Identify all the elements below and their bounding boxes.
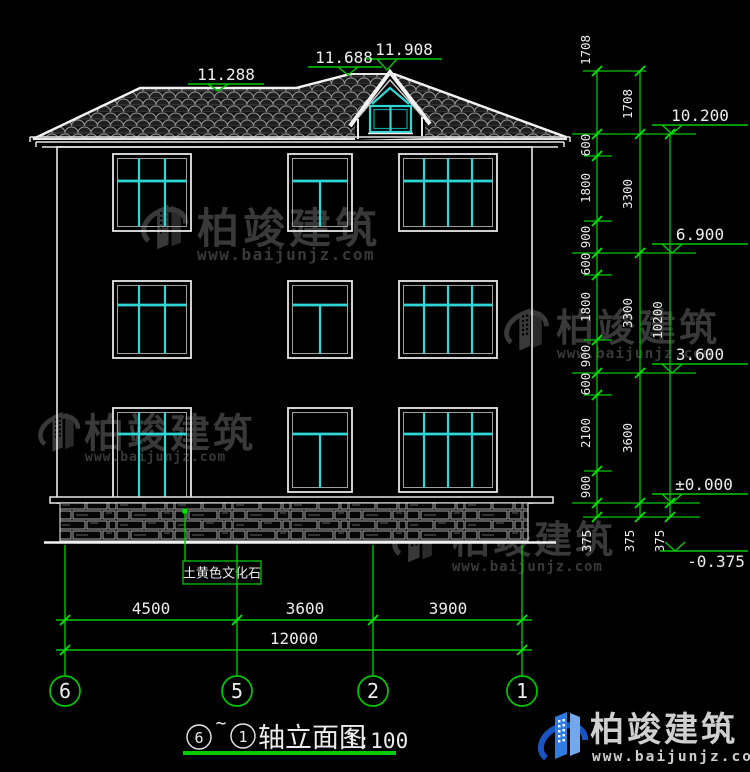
dim-text: 3600 xyxy=(286,599,325,618)
dim-text: 3300 xyxy=(620,298,635,328)
brand-name: 柏竣建筑 xyxy=(590,710,738,750)
material-label: 土黄色文化石 xyxy=(183,566,261,582)
stone-base xyxy=(60,503,528,541)
axis-bubbles: 6 5 2 1 xyxy=(50,676,537,706)
roof xyxy=(33,74,566,139)
watermark-logo-icon xyxy=(40,412,77,452)
dim-text: 3300 xyxy=(620,179,635,209)
dim-text: 1708 xyxy=(620,89,635,119)
elevation-label: 6.900 xyxy=(676,225,724,244)
elevation-label: 11.688 xyxy=(315,48,373,67)
axis-bubble-label: 2 xyxy=(367,679,379,703)
drawing-title: 6 ~ 1 轴立面图 1:100 xyxy=(183,713,408,755)
dim-text: 900 xyxy=(578,476,593,499)
house-elevation xyxy=(30,72,570,543)
dim-text: 1800 xyxy=(578,173,593,203)
dim-text: 600 xyxy=(578,253,593,276)
watermark-url: www.baijunjz.com xyxy=(197,245,375,264)
dim-text: 900 xyxy=(578,226,593,249)
dim-text: 1708 xyxy=(578,35,593,65)
brand-footer: 柏竣建筑 www.baijunjz.com xyxy=(541,710,750,765)
elevation-label: -0.375 xyxy=(687,552,745,571)
dim-text: 375 xyxy=(622,530,637,553)
title-axis-to: 1 xyxy=(238,728,247,746)
axis-bubble-label: 6 xyxy=(59,679,71,703)
window-ground-middle xyxy=(288,408,352,492)
cad-elevation-drawing: 柏竣建筑 www.baijunjz.com 柏竣建筑 www.baijunjz.… xyxy=(0,0,750,772)
dim-text: 1800 xyxy=(578,292,593,322)
dim-text: 10200 xyxy=(650,301,665,339)
title-underline xyxy=(183,751,396,755)
window-top-right xyxy=(399,154,497,231)
watermark-url: www.baijunjz.com xyxy=(452,559,603,575)
dim-text: 900 xyxy=(578,345,593,368)
watermark-upper-center: 柏竣建筑 www.baijunjz.com xyxy=(144,204,381,264)
dim-text: 375 xyxy=(652,530,667,553)
dim-text: 600 xyxy=(578,373,593,396)
window-ground-right xyxy=(399,408,497,492)
watermark-lower-left: 柏竣建筑 www.baijunjz.com xyxy=(40,411,256,465)
window-mid-left xyxy=(113,281,191,358)
dim-text: 2100 xyxy=(578,418,593,448)
brand-url: www.baijunjz.com xyxy=(592,749,750,765)
drawing-canvas: 柏竣建筑 www.baijunjz.com 柏竣建筑 www.baijunjz.… xyxy=(0,0,750,772)
title-scale: 1:100 xyxy=(345,729,408,753)
brand-logo-icon xyxy=(541,712,585,759)
title-separator: ~ xyxy=(216,713,227,734)
dim-text: 600 xyxy=(578,134,593,157)
elevation-label: 10.200 xyxy=(671,106,729,125)
dim-text: 4500 xyxy=(132,599,171,618)
dim-text: 3900 xyxy=(429,599,468,618)
floor-slab-band xyxy=(50,497,553,503)
dim-text: 12000 xyxy=(270,629,318,648)
dim-text: 375 xyxy=(579,530,594,553)
window-mid-middle xyxy=(288,281,352,358)
elevation-label: 11.908 xyxy=(375,40,433,59)
axis-bubble-label: 5 xyxy=(231,679,243,703)
watermark-url: www.baijunjz.com xyxy=(85,450,226,465)
dim-text: 3600 xyxy=(620,423,635,453)
elevation-label: ±0.000 xyxy=(675,475,733,494)
elevation-label: 11.288 xyxy=(197,65,255,84)
watermark-logo-icon xyxy=(507,308,547,350)
axis-bubble-label: 1 xyxy=(516,679,528,703)
window-mid-right xyxy=(399,281,497,358)
elevation-label: 3.600 xyxy=(676,345,724,364)
title-axis-from: 6 xyxy=(194,729,203,747)
